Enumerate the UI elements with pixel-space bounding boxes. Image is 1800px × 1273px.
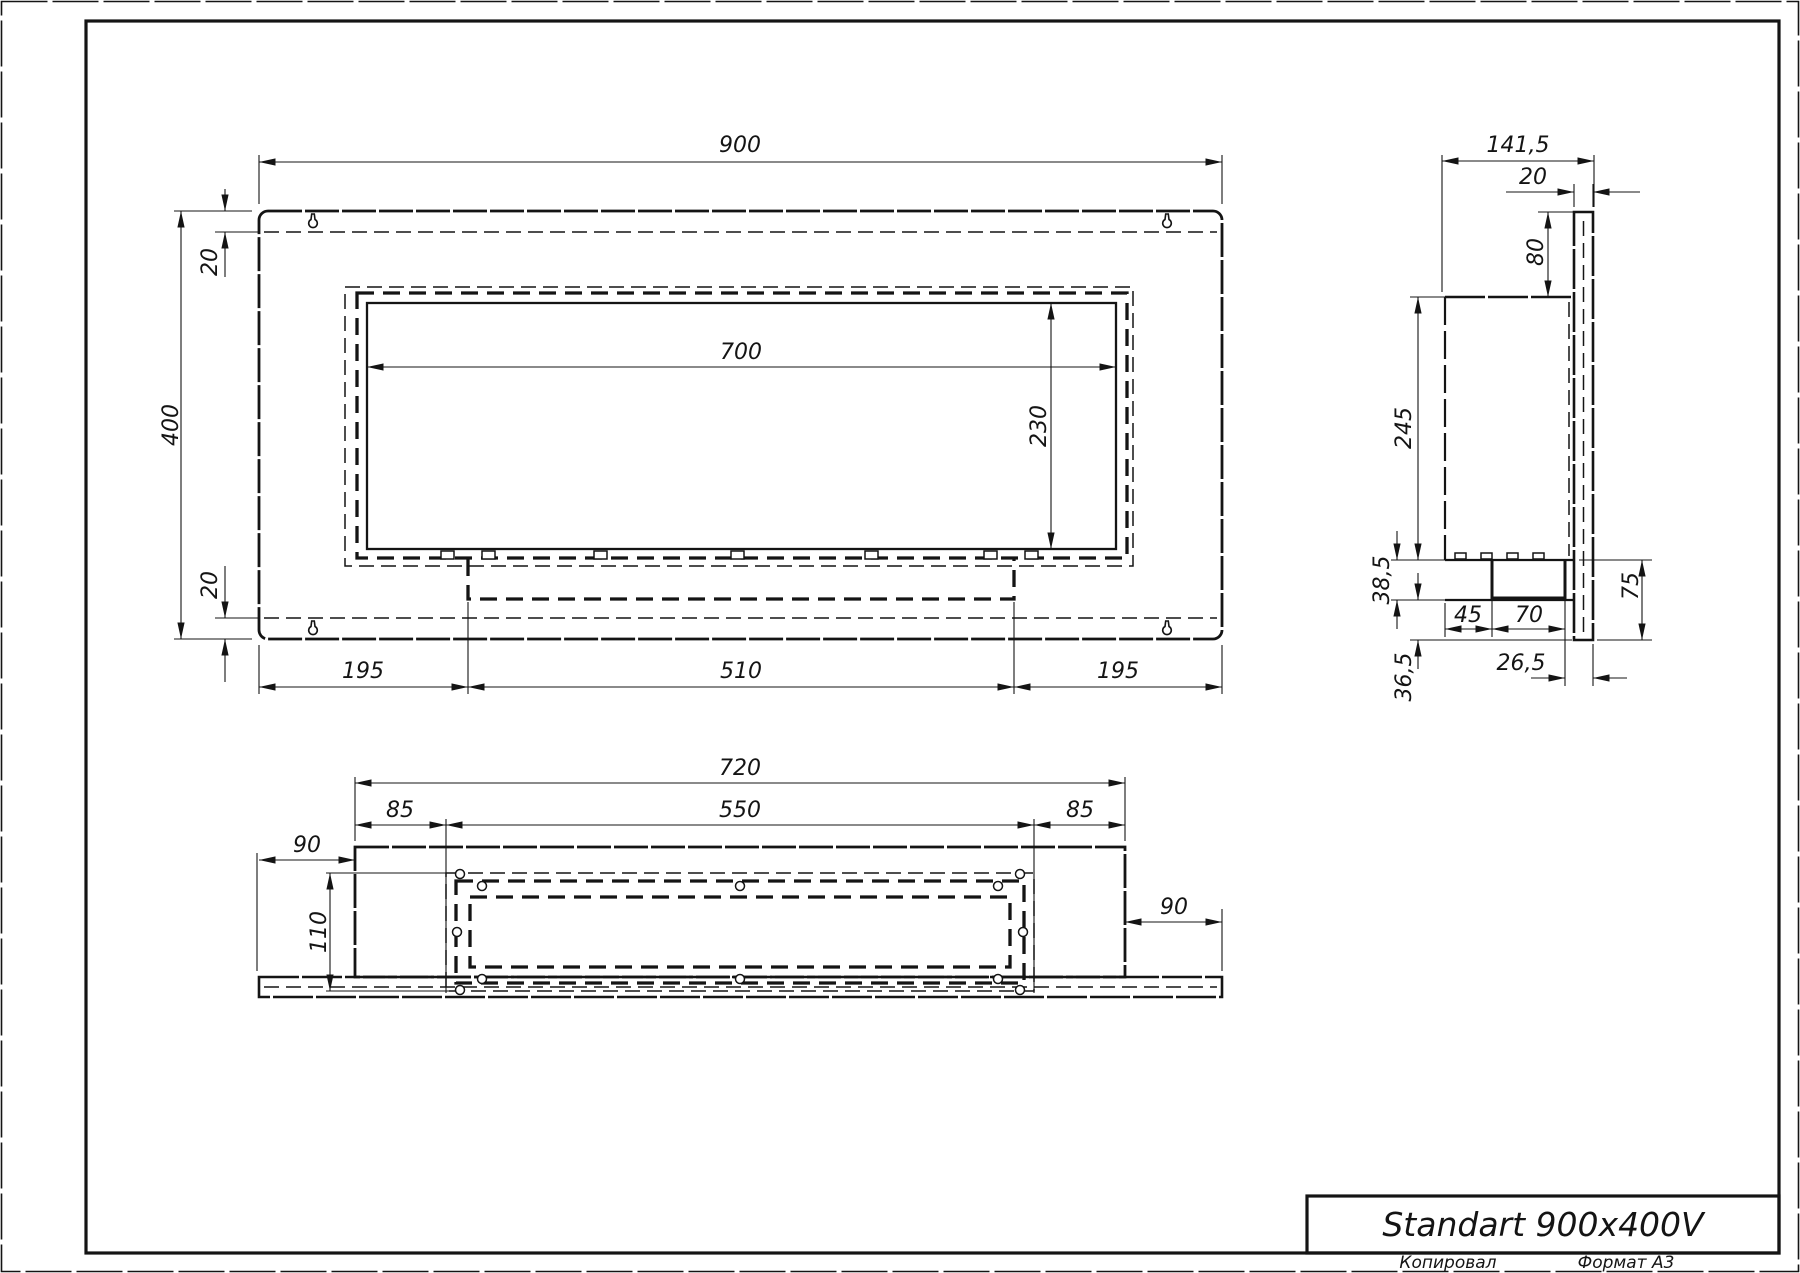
dim-opening-height: 230	[1027, 405, 1052, 447]
dim-bottom-height: 36,5	[1392, 653, 1417, 702]
dim-left-margin: 195	[342, 659, 384, 684]
side-burner-box	[1492, 560, 1565, 598]
drawing-canvas: 900 400 20 20 700 230 195 510 195	[0, 0, 1800, 1273]
dim-top-opening-width: 550	[719, 798, 761, 823]
flange-tabs	[441, 551, 1038, 559]
dim-body-height: 245	[1392, 407, 1417, 449]
dim-top-body-width: 720	[719, 756, 761, 781]
top-view: 720 85 550 85 90 90 110	[257, 756, 1222, 997]
inner-box-hidden	[345, 287, 1133, 566]
front-dimension-lines	[181, 162, 1222, 687]
copied-label: Копировал	[1399, 1253, 1496, 1273]
dim-top-gap: 80	[1524, 238, 1549, 266]
dim-right-margin: 195	[1097, 659, 1139, 684]
dim-front-top-offset: 20	[198, 248, 223, 276]
dim-burner-width: 510	[720, 659, 762, 684]
dim-side-burner-width: 70	[1515, 603, 1543, 628]
dim-front-bottom-offset: 20	[198, 571, 223, 599]
dim-burner-offset: 45	[1454, 603, 1482, 628]
front-view: 900 400 20 20 700 230 195 510 195	[159, 133, 1222, 694]
dim-lower-height: 38,5	[1370, 556, 1395, 605]
dim-front-width: 900	[719, 133, 761, 158]
dim-right-height: 75	[1619, 572, 1644, 600]
dim-opening-width: 700	[720, 340, 762, 365]
burner-tray-hidden	[468, 559, 1014, 599]
dim-front-height: 400	[159, 404, 184, 446]
front-extension-lines	[174, 155, 1222, 694]
dim-inset-right: 85	[1066, 798, 1094, 823]
front-outline	[259, 211, 1222, 639]
title-block: Standart 900x400V Копировал Формат A3	[1307, 1196, 1779, 1273]
dim-opening-depth: 110	[307, 911, 332, 953]
dim-overhang-left: 90	[293, 833, 321, 858]
dim-bottom-offset: 26,5	[1497, 651, 1546, 676]
dim-depth: 141,5	[1487, 133, 1550, 158]
dim-wall-thickness: 20	[1519, 165, 1547, 190]
drawing-sheet: 900 400 20 20 700 230 195 510 195	[0, 0, 1800, 1273]
dim-overhang-right: 90	[1160, 895, 1188, 920]
dim-inset-left: 85	[386, 798, 414, 823]
drawing-title: Standart 900x400V	[1382, 1205, 1706, 1244]
side-flange-tabs	[1455, 553, 1544, 559]
side-view: 141,5 20 80 245 38,5 36,5 75 45 70 26,5	[1370, 133, 1652, 701]
format-label: Формат A3	[1578, 1253, 1675, 1273]
